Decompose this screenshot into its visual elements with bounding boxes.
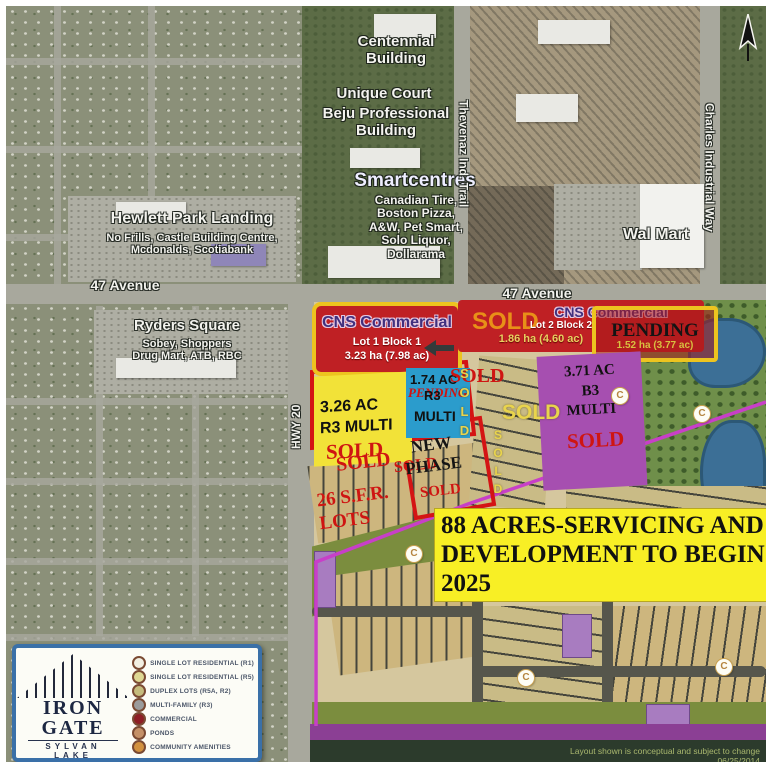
street: [6, 398, 296, 405]
legend-label: COMMERCIAL: [150, 716, 197, 723]
legend-swatch-commercial: [132, 712, 146, 726]
legend-item: DUPLEX LOTS (R5A, R2): [132, 684, 254, 698]
community-amenity-marker: C: [406, 546, 422, 562]
aerial-map: CNS Commercial Lot 1 Block 1 3.23 ha (7.…: [6, 6, 766, 762]
avenue-47-label-west: 47 Avenue: [80, 278, 170, 294]
logo-title: IRON GATE: [16, 698, 130, 738]
street: [54, 6, 61, 286]
beju-label: Beju Professional Building: [306, 106, 466, 140]
legend-label: MULTI-FAMILY (R3): [150, 702, 213, 709]
legend-item: COMMERCIAL: [132, 712, 254, 726]
walmart-label: Wal Mart: [606, 226, 706, 244]
legend-swatch-r1: [132, 656, 146, 670]
hewlett-tenants-label: No Frills, Castle Building Centre, Mcdon…: [72, 232, 312, 257]
legend-swatch-r5: [132, 670, 146, 684]
new-phase-label: NEW PHASE: [402, 431, 463, 480]
pending-area: 1.52 ha (3.77 ac): [596, 340, 714, 351]
legend-item: SINGLE LOT RESIDENTIAL (R5): [132, 670, 254, 684]
legend-item: SINGLE LOT RESIDENTIAL (R1): [132, 656, 254, 670]
industrial-shed: [538, 20, 610, 44]
community-amenity-marker: C: [694, 406, 710, 422]
flyer-page: CNS Commercial Lot 1 Block 1 3.23 ha (7.…: [0, 0, 772, 768]
development-banner: 88 ACRES-SERVICING AND DEVELOPMENT TO BE…: [434, 508, 766, 602]
hwy-20-label: HWY 20: [290, 392, 303, 462]
unique-court-label: Unique Court: [324, 86, 444, 103]
street: [6, 634, 296, 641]
thevenaz-label: Thevenaz Ind. Trail: [456, 84, 469, 224]
b3-sold: SOLD: [567, 428, 625, 452]
future-road-strip: [310, 724, 766, 740]
legend-items: SINGLE LOT RESIDENTIAL (R1) SINGLE LOT R…: [130, 648, 258, 758]
building: [350, 148, 420, 168]
ryders-tenants-label: Sobey, Shoppers Drug Mart, ATB, RBC: [112, 338, 262, 363]
legend-label: SINGLE LOT RESIDENTIAL (R5): [150, 674, 254, 681]
hewlett-label: Hewlett Park Landing: [102, 210, 282, 228]
community-amenity-marker: C: [716, 659, 732, 675]
green-strip: [312, 702, 766, 726]
r4-zone: R3: [424, 388, 441, 403]
industrial-shed: [516, 94, 578, 122]
r4-multi-label: MULTI: [414, 408, 456, 424]
sfr-lots-label: 26 S.F.R. LOTS: [315, 482, 392, 536]
ryders-label: Ryders Square: [122, 318, 252, 335]
legend-swatch-multifamily: [132, 698, 146, 712]
legend-label: PONDS: [150, 730, 174, 737]
legend-item: PONDS: [132, 726, 254, 740]
logo-subtitle: SYLVAN LAKE: [28, 740, 118, 760]
future-multifamily-block: [562, 614, 592, 658]
legend-label: COMMUNITY AMENITIES: [150, 744, 231, 751]
charles-label: Charles Industrial Way: [702, 72, 715, 262]
street: [6, 478, 296, 485]
legend-box: IRON GATE SYLVAN LAKE SINGLE LOT RESIDEN…: [12, 644, 262, 762]
cns-lot1-name: CNS Commercial: [316, 314, 458, 332]
legend-label: DUPLEX LOTS (R5A, R2): [150, 688, 231, 695]
logo: IRON GATE SYLVAN LAKE: [16, 648, 130, 758]
iron-gate-logo-icon: [17, 654, 129, 698]
hwy-20-road: [288, 284, 314, 762]
disclaimer-text: Layout shown is conceptual and subject t…: [554, 746, 760, 762]
community-amenity-marker: C: [612, 388, 628, 404]
legend-item: COMMUNITY AMENITIES: [132, 740, 254, 754]
legend-swatch-amenities: [132, 740, 146, 754]
sold-mark-vertical: SOLD: [492, 428, 504, 500]
avenue-47-label-east: 47 Avenue: [492, 286, 582, 302]
legend-label: SINGLE LOT RESIDENTIAL (R1): [150, 660, 254, 667]
north-arrow-icon: [734, 14, 762, 62]
sold-mark-yellow: SOLD: [502, 402, 560, 423]
centennial-label: Centennial Building: [336, 34, 456, 68]
future-multifamily-block: [314, 551, 336, 608]
community-amenity-marker: C: [518, 670, 534, 686]
legend-swatch-duplex: [132, 684, 146, 698]
street: [6, 558, 296, 565]
pending-status: PENDING: [596, 320, 714, 342]
legend-swatch-ponds: [132, 726, 146, 740]
sold-mark-vertical: SOLD: [458, 366, 471, 442]
legend-item: MULTI-FAMILY (R3): [132, 698, 254, 712]
wave-icon: [18, 761, 128, 762]
plan-road: [312, 606, 476, 617]
sold-mark: SOLD: [335, 449, 391, 475]
r3-multi-label: 3.26 AC R3 MULTI: [320, 394, 393, 439]
smartcentres-label: Smartcentres: [332, 170, 498, 191]
